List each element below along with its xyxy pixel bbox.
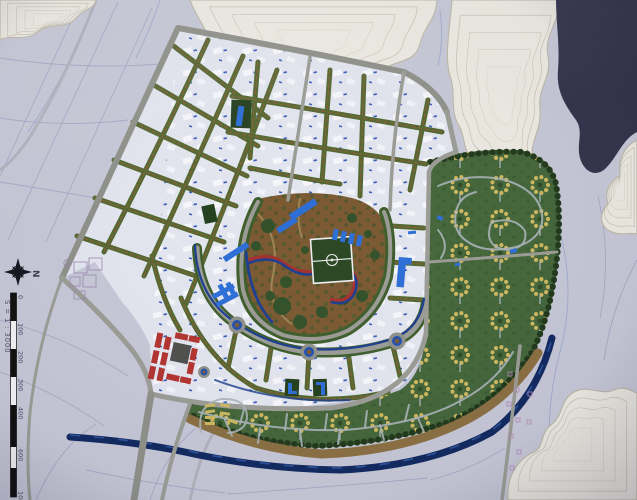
master-plan-model: N 0 100 200 300 400 600 1000 S = 1 : 300… [0, 0, 637, 500]
photo-vignette [0, 0, 637, 500]
model-photograph: N 0 100 200 300 400 600 1000 S = 1 : 300… [0, 0, 637, 500]
